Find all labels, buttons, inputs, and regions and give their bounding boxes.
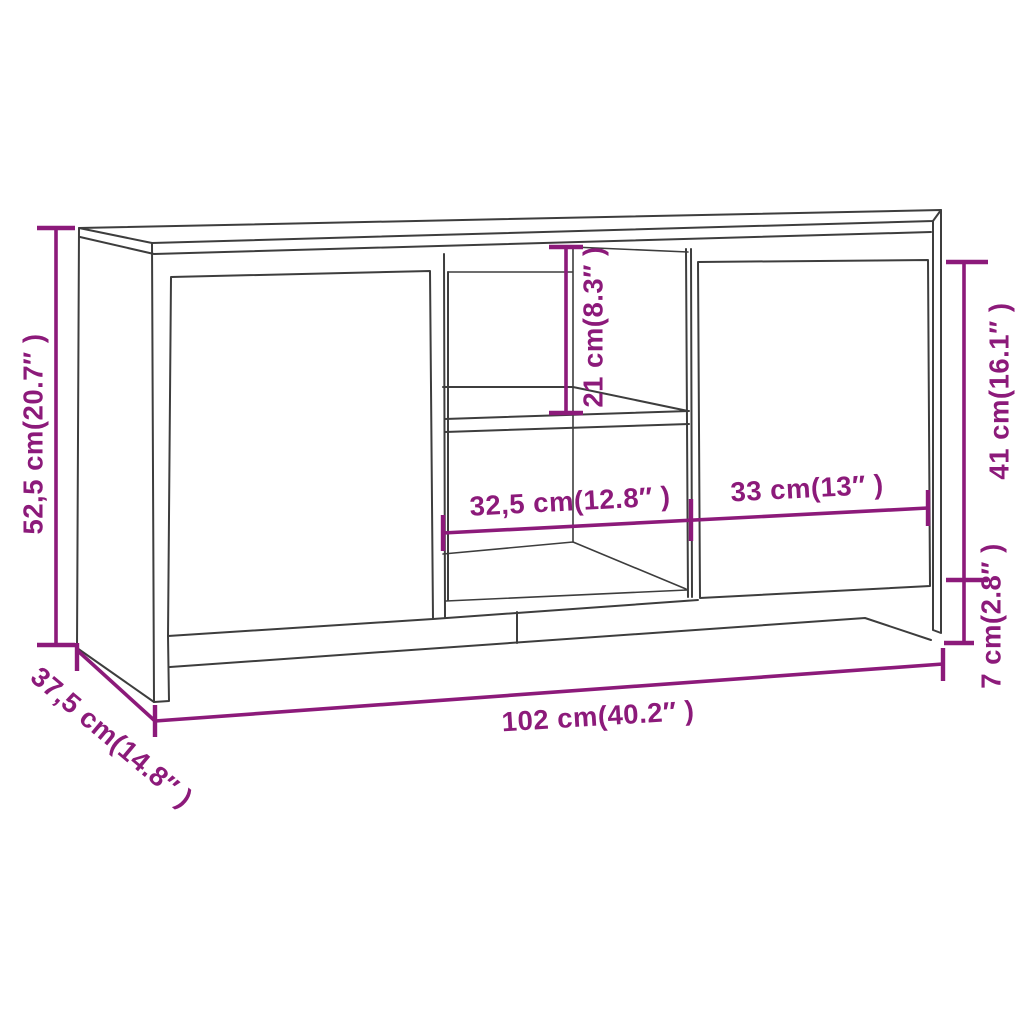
- door-height-label: 41 cm(16.1″ ): [984, 302, 1015, 479]
- compartment-floor: [443, 542, 687, 601]
- tv-cabinet-dimension-diagram: 52,5 cm(20.7″ ) 37,5 cm(14.8″ ) 102 cm(4…: [0, 0, 1024, 1024]
- right-door: [698, 260, 930, 598]
- dimension-overall-depth: 37,5 cm(14.8″ ): [25, 643, 199, 813]
- dimension-annotations: 52,5 cm(20.7″ ) 37,5 cm(14.8″ ) 102 cm(4…: [18, 228, 1015, 813]
- dimension-overall-height: 52,5 cm(20.7″ ): [18, 228, 76, 645]
- bottom-band: [170, 600, 931, 667]
- dimension-interior-widths: 32,5 cm(12.8″ ) 33 cm(13″ ): [443, 469, 928, 551]
- overall-height-label: 52,5 cm(20.7″ ): [18, 333, 49, 534]
- dimension-leg-height: 7 cm(2.8″ ): [944, 543, 1007, 689]
- dimension-overall-width: 102 cm(40.2″ ): [155, 648, 943, 737]
- cabinet-left-side: [77, 228, 154, 702]
- cabinet-line-drawing: [77, 210, 941, 702]
- leg-height-label: 7 cm(2.8″ ): [976, 543, 1007, 689]
- cabinet-top-face: [79, 210, 941, 243]
- upper-opening-height-label: 21 cm(8.3″ ): [578, 246, 609, 407]
- dimension-door-height: 41 cm(16.1″ ): [946, 262, 1015, 580]
- left-opening-width-label: 32,5 cm(12.8″ ): [469, 480, 671, 521]
- cabinet-right-edge: [933, 210, 941, 633]
- cabinet-top-band: [80, 232, 931, 254]
- front-left-leg: [154, 636, 169, 702]
- left-door: [168, 271, 433, 636]
- overall-width-label: 102 cm(40.2″ ): [501, 695, 695, 738]
- compartment-left-wall: [444, 254, 448, 617]
- diagram-canvas: 52,5 cm(20.7″ ) 37,5 cm(14.8″ ) 102 cm(4…: [0, 0, 1024, 1024]
- right-door-width-label: 33 cm(13″ ): [730, 469, 885, 508]
